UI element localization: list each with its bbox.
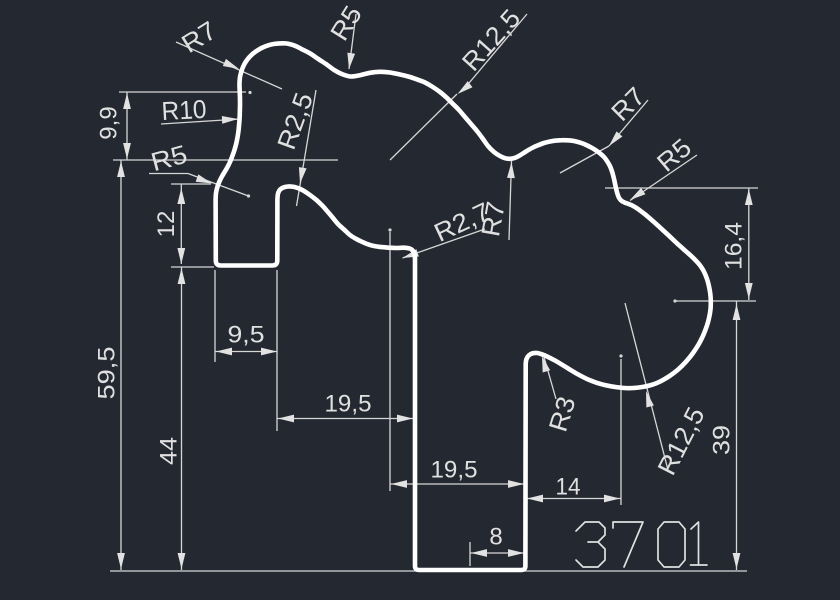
svg-text:R5: R5 (148, 139, 191, 177)
svg-text:14: 14 (556, 473, 581, 500)
svg-text:R3: R3 (543, 393, 582, 435)
svg-text:19,5: 19,5 (325, 390, 372, 417)
svg-text:16,4: 16,4 (720, 222, 747, 270)
svg-text:R12,5: R12,5 (456, 3, 526, 77)
svg-text:R7: R7 (605, 81, 651, 127)
svg-text:9,5: 9,5 (228, 321, 265, 348)
svg-text:12: 12 (153, 211, 180, 238)
svg-text:9,9: 9,9 (95, 106, 122, 139)
svg-text:R2,5: R2,5 (271, 89, 319, 154)
svg-text:8: 8 (489, 523, 502, 550)
svg-text:R5: R5 (651, 132, 697, 177)
svg-text:R7: R7 (475, 199, 511, 239)
svg-text:R5: R5 (324, 0, 368, 46)
svg-text:44: 44 (155, 437, 182, 465)
svg-text:19,5: 19,5 (431, 456, 478, 483)
svg-text:39: 39 (708, 425, 735, 455)
svg-text:R10: R10 (161, 94, 208, 126)
svg-text:59,5: 59,5 (93, 347, 120, 400)
svg-text:R7: R7 (176, 15, 222, 59)
